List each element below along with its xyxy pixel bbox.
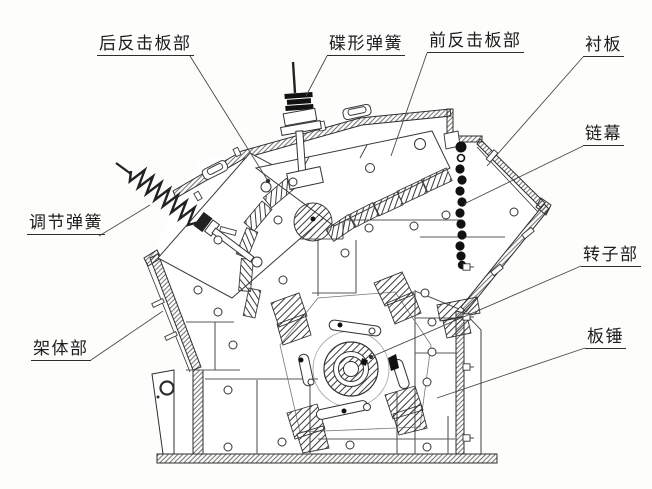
diagram-canvas	[0, 0, 652, 489]
label-blow-bar: 板锤	[585, 327, 626, 349]
label-chain-curtain: 链幕	[583, 124, 624, 146]
label-front-impact-plate: 前反击板部	[427, 31, 524, 53]
label-liner-plate: 衬板	[583, 35, 624, 57]
crusher-sectional-diagram: 后反击板部 碟形弹簧 前反击板部 衬板 链幕 调节弹簧 架体部 转子部 板锤	[0, 0, 652, 489]
label-frame-body: 架体部	[31, 339, 91, 361]
label-adjusting-spring: 调节弹簧	[27, 213, 105, 235]
label-rear-impact-plate: 后反击板部	[97, 34, 194, 56]
label-disc-spring: 碟形弹簧	[327, 34, 405, 56]
label-rotor-assembly: 转子部	[581, 245, 641, 267]
